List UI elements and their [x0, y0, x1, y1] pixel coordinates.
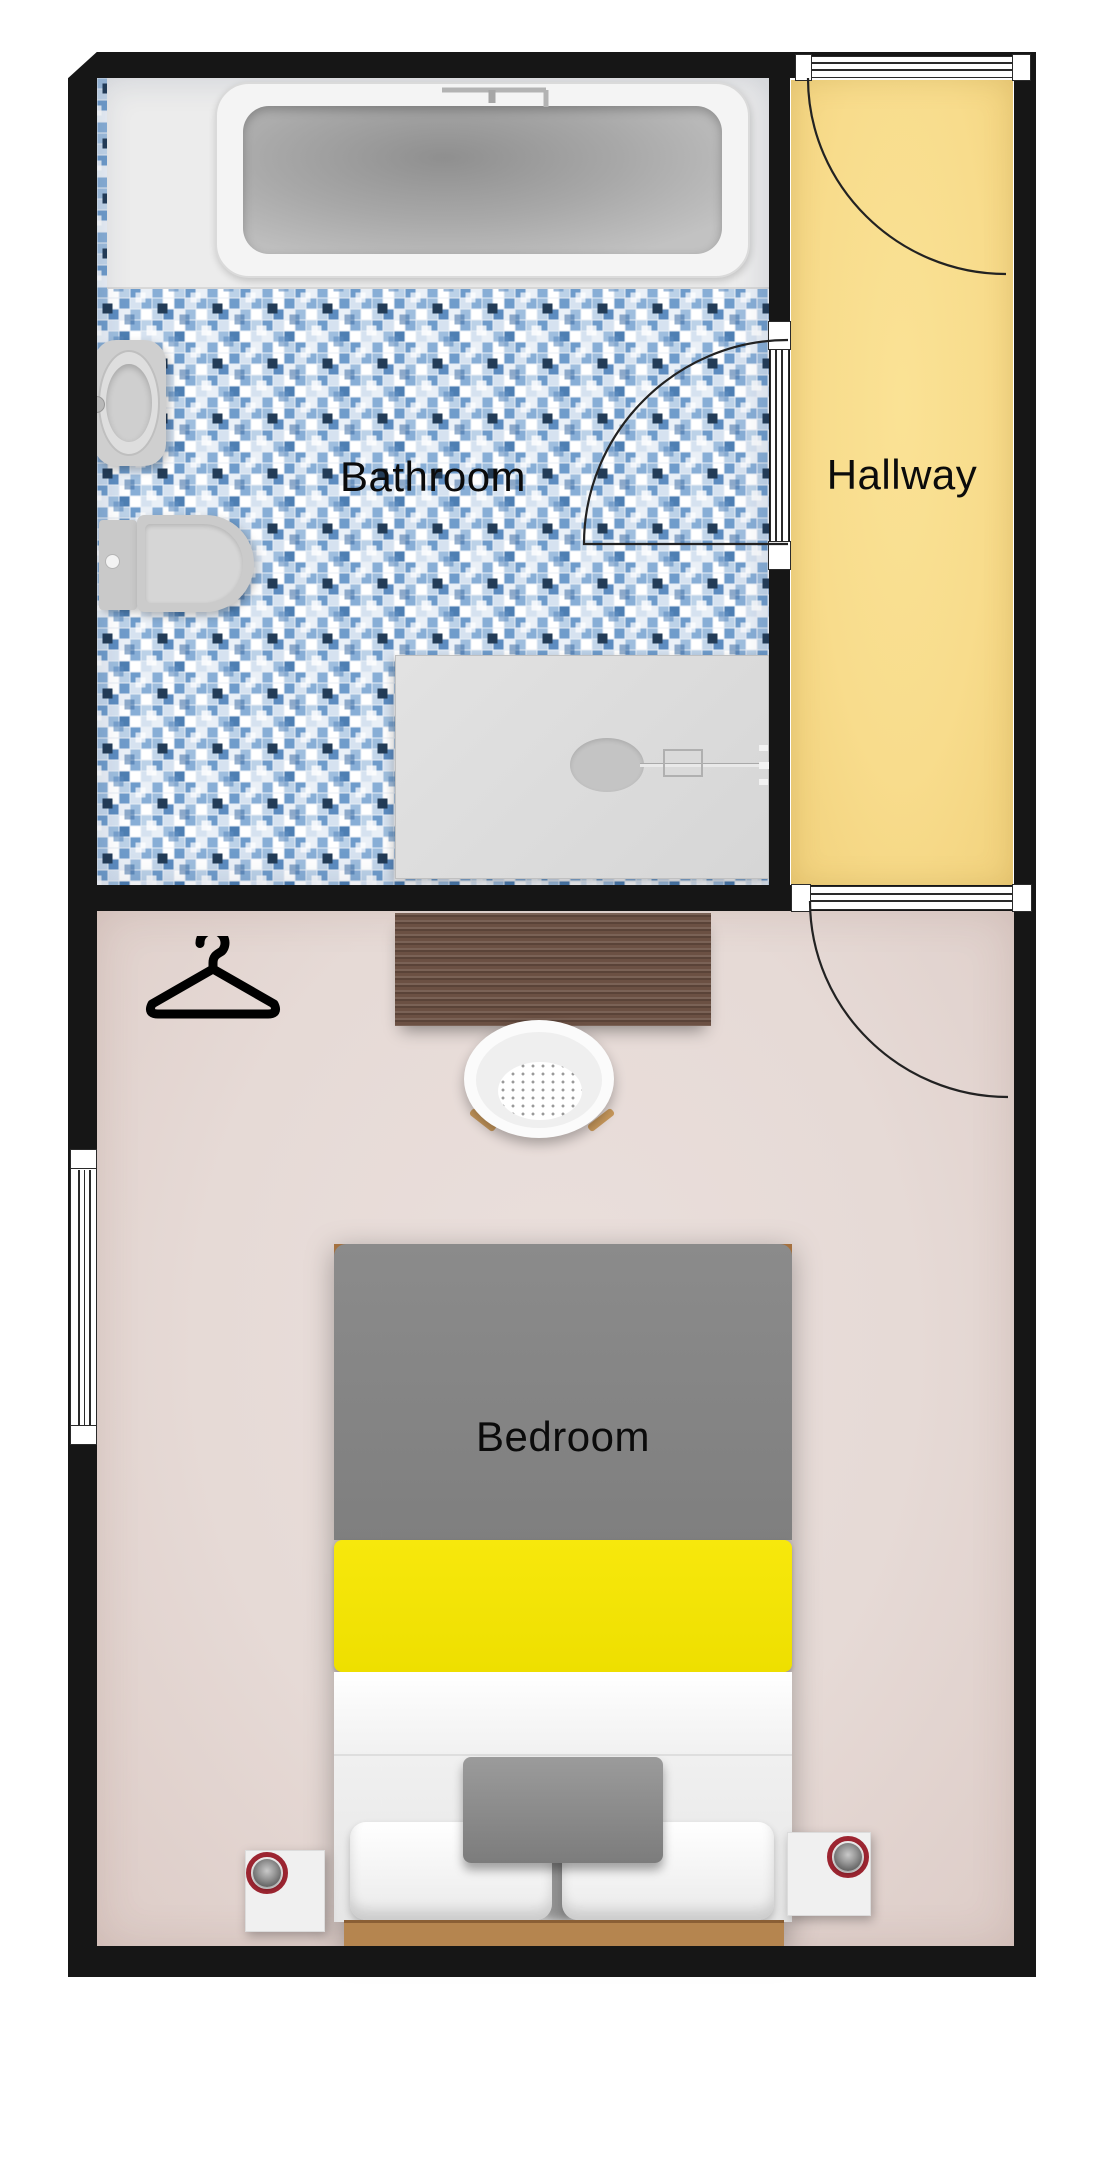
hallway-label: Hallway	[827, 451, 978, 499]
floor-plan: Bathroom Hallway Bedroom	[0, 0, 1102, 2160]
bedroom-door-swing	[810, 901, 1008, 1097]
entry-door-swing	[808, 78, 1006, 274]
bathroom-label: Bathroom	[340, 453, 526, 501]
bedroom-label: Bedroom	[476, 1413, 650, 1461]
bathroom-door-swing	[584, 340, 788, 544]
door-swing-arcs	[0, 0, 1102, 2160]
